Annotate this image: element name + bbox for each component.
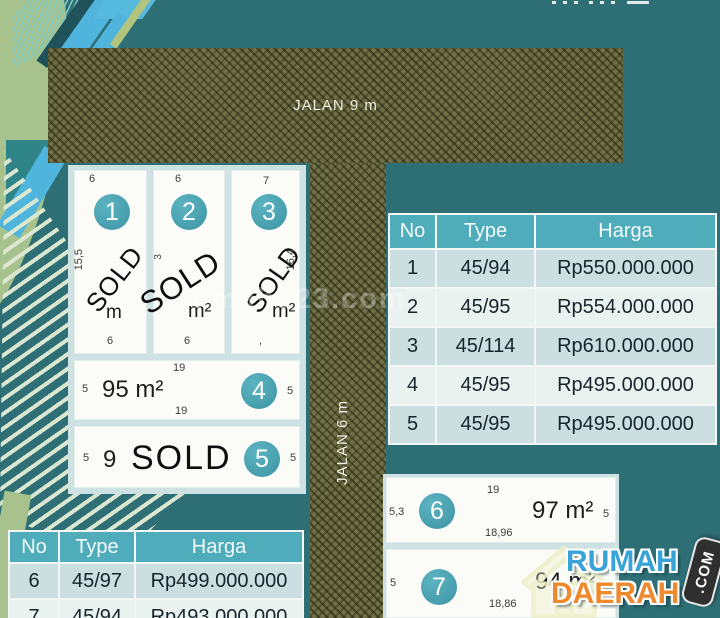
plot-3-right-dim: 16,4 — [286, 249, 297, 270]
logo-daerah-text: DAERAH — [551, 579, 679, 609]
table-row: 1 45/94 Rp550.000.000 — [390, 250, 715, 287]
table-header-row: No Type Harga — [10, 532, 302, 562]
cell-no: 6 — [10, 564, 58, 598]
plot-6-right-dim: 5 — [603, 509, 609, 520]
plot-5-number-badge: 5 — [244, 441, 280, 477]
cell-no: 1 — [390, 250, 435, 287]
plot-5-sold-label: SOLD — [131, 441, 232, 475]
cell-type: 45/95 — [437, 406, 534, 443]
cell-harga: Rp495.000.000 — [536, 406, 715, 443]
cell-type: 45/94 — [60, 600, 134, 618]
cell-harga: Rp499.000.000 — [136, 564, 302, 598]
plot-2-top-dim: 6 — [175, 174, 181, 185]
plot-5: 5 9 SOLD 5 5 — [74, 426, 300, 488]
plot-6-number-badge: 6 — [419, 493, 455, 529]
plot-1-number-badge: 1 — [94, 194, 130, 230]
logo-com-badge: .COM — [680, 535, 720, 609]
plot-7-number-badge: 7 — [421, 569, 457, 605]
cell-no: 5 — [390, 406, 435, 443]
table-row: 3 45/114 Rp610.000.000 — [390, 328, 715, 365]
cell-type: 45/97 — [60, 564, 134, 598]
cell-no: 3 — [390, 328, 435, 365]
col-header-no: No — [390, 215, 435, 248]
watermark-text: rumah123.com — [178, 283, 407, 316]
plot-4-bottom-dim: 19 — [175, 406, 187, 417]
plot-4-top-dim: 19 — [173, 363, 185, 374]
col-header-type: Type — [60, 532, 134, 562]
plot-4-number-badge: 4 — [241, 373, 277, 409]
plot-5-right-dim: 5 — [290, 453, 296, 464]
plot-6-left-dim: 5,3 — [389, 507, 404, 518]
road-horizontal-label: JALAN 9 m — [293, 97, 378, 114]
table-row: 5 45/95 Rp495.000.000 — [390, 406, 715, 443]
cell-harga: Rp495.000.000 — [536, 367, 715, 404]
col-header-type: Type — [437, 215, 534, 248]
plot-7-bottom-dim: 18,86 — [489, 599, 517, 610]
plot-3-number-badge: 3 — [251, 194, 287, 230]
plot-5-area-fragment: 9 — [103, 448, 116, 472]
cell-harga: Rp554.000.000 — [536, 289, 715, 326]
plot-1-top-dim: 6 — [89, 174, 95, 185]
plot-1-bottom-dim: 6 — [107, 336, 113, 347]
cell-harga: Rp550.000.000 — [536, 250, 715, 287]
plot-5-left-dim: 5 — [83, 453, 89, 464]
cell-harga: Rp610.000.000 — [536, 328, 715, 365]
plot-1-left-dim: 15,5 — [74, 249, 85, 270]
logo-rumah-text: RUMAH — [566, 547, 678, 577]
table-header-row: No Type Harga — [390, 215, 715, 248]
price-table-right: No Type Harga 1 45/94 Rp550.000.000 2 45… — [388, 213, 717, 445]
road-vertical-label: JALAN 6 m — [334, 400, 351, 485]
price-table-bottom: No Type Harga 6 45/97 Rp499.000.000 7 45… — [8, 530, 304, 618]
plot-2-bottom-dim: 6 — [184, 336, 190, 347]
plot-4-left-dim: 5 — [82, 384, 88, 395]
col-header-harga: Harga — [136, 532, 302, 562]
cell-no: 4 — [390, 367, 435, 404]
table-row: 2 45/95 Rp554.000.000 — [390, 289, 715, 326]
plot-4-right-dim: 5 — [287, 386, 293, 397]
col-header-harga: Harga — [536, 215, 715, 248]
col-header-no: No — [10, 532, 58, 562]
road-horizontal: JALAN 9 m — [48, 48, 623, 163]
plot-2-left-dim: 3 — [154, 254, 164, 260]
plot-3-top-dim: 7 — [263, 176, 269, 187]
cell-type: 45/94 — [437, 250, 534, 287]
plot-4-area: 95 m² — [102, 378, 163, 402]
plot-1-area-fragment: m — [106, 303, 122, 322]
plot-2-number-badge: 2 — [171, 194, 207, 230]
site-plan-flyer: JALAN 9 m JALAN 6 m 6 1 15,5 SOLD m 6 6 … — [0, 0, 720, 618]
plot-3: 7 3 SOLD 16,4 m² , — [231, 170, 300, 354]
cell-no: 7 — [10, 600, 58, 618]
cell-type: 45/95 — [437, 289, 534, 326]
plot-7-left-dim: 5 — [390, 578, 396, 589]
cell-harga: Rp493.000.000 — [136, 600, 302, 618]
plot-6-top-dim: 19 — [487, 485, 499, 496]
table-row: 4 45/95 Rp495.000.000 — [390, 367, 715, 404]
table-row: 6 45/97 Rp499.000.000 — [10, 564, 302, 598]
road-vertical: JALAN 6 m — [310, 163, 386, 618]
plot-6-area: 97 m² — [532, 499, 593, 523]
cropped-top-text — [552, 1, 656, 7]
cell-type: 45/95 — [437, 367, 534, 404]
plot-6: 19 5,3 6 97 m² 5 18,96 — [386, 477, 616, 543]
plot-3-bottom-dim: , — [259, 336, 262, 347]
plot-1: 6 1 15,5 SOLD m 6 — [74, 170, 147, 354]
plot-6-bottom-dim: 18,96 — [485, 528, 513, 539]
cell-type: 45/114 — [437, 328, 534, 365]
table-row: 7 45/94 Rp493.000.000 — [10, 600, 302, 618]
plot-2: 6 2 3 SOLD m² 6 — [153, 170, 225, 354]
plot-4: 19 5 95 m² 4 5 19 — [74, 360, 300, 420]
